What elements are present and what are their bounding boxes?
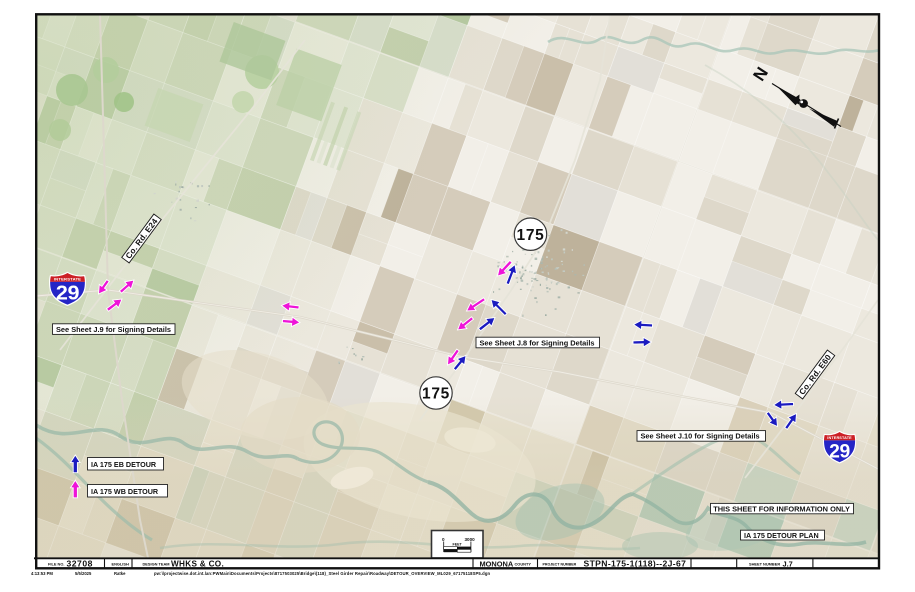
svg-text:J.7: J.7 [783,559,793,568]
svg-text:See Sheet J.9 for Signing Deta: See Sheet J.9 for Signing Details [56,325,171,334]
svg-text:PROJECT NUMBER: PROJECT NUMBER [543,562,577,566]
svg-text:DESIGN TEAM: DESIGN TEAM [143,561,170,566]
svg-text:32708: 32708 [67,559,93,569]
svg-text:FEET: FEET [453,543,463,547]
svg-text:pw:\\projectwise.dot.int.lan:P: pw:\\projectwise.dot.int.lan:PWMain\Docu… [154,571,491,576]
svg-text:3000: 3000 [465,537,476,542]
svg-text:4:13:53 PM: 4:13:53 PM [31,571,53,576]
svg-text:FILE NO.: FILE NO. [48,561,64,566]
svg-text:5/5/2025: 5/5/2025 [75,571,92,576]
svg-text:See Sheet J.8 for Signing Deta: See Sheet J.8 for Signing Details [480,338,595,347]
svg-text:COUNTY: COUNTY [515,561,532,566]
svg-text:SHEET NUMBER: SHEET NUMBER [749,561,780,566]
svg-text:ENGLISH: ENGLISH [112,561,129,566]
svg-text:THIS SHEET FOR INFORMATION ONL: THIS SHEET FOR INFORMATION ONLY [713,504,850,513]
svg-text:IA 175 WB DETOUR: IA 175 WB DETOUR [91,487,159,496]
svg-text:MONONA: MONONA [480,559,514,568]
svg-text:175: 175 [422,386,450,403]
svg-text:See Sheet J.10 for Signing Det: See Sheet J.10 for Signing Details [641,432,760,441]
svg-text:STPN-175-1(118)--2J-67: STPN-175-1(118)--2J-67 [584,559,687,569]
svg-text:Ratke: Ratke [114,571,126,576]
svg-text:WHKS & CO.: WHKS & CO. [171,560,224,569]
svg-text:0: 0 [442,537,445,542]
svg-text:175: 175 [517,227,545,244]
svg-text:IA 175 DETOUR PLAN: IA 175 DETOUR PLAN [744,531,819,540]
svg-text:IA 175 EB DETOUR: IA 175 EB DETOUR [91,460,157,469]
